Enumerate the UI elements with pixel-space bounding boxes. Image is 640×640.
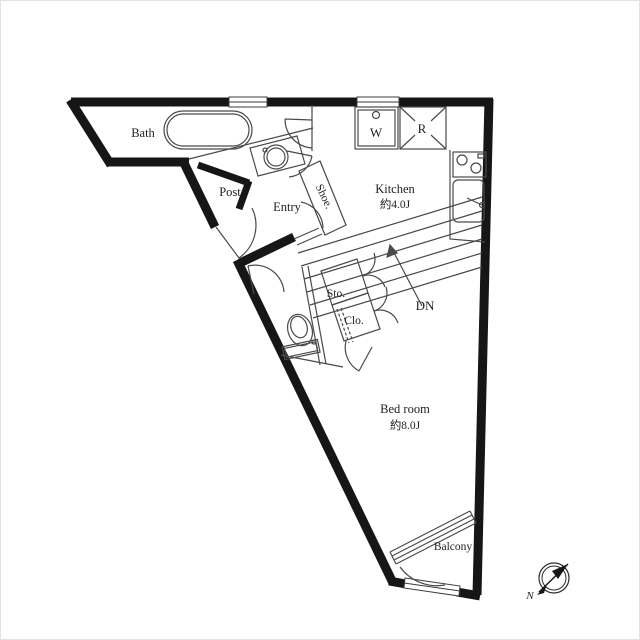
balcony-label: Balcony: [434, 541, 473, 553]
washbasin: [263, 145, 288, 169]
kitchen-label: Kitchen: [375, 182, 415, 196]
floorplan-drawing: Bath Post Entry Shoe. Kitchen 約4.0J W R …: [1, 1, 640, 640]
storage-label: Sto.: [327, 288, 345, 300]
outer-walls: [70, 99, 493, 596]
compass-north-label: N: [525, 590, 534, 602]
stairs: [298, 197, 482, 318]
hall-door-arc: [301, 202, 323, 228]
stove: [453, 152, 486, 177]
floorplan-canvas: Bath Post Entry Shoe. Kitchen 約4.0J W R …: [0, 0, 640, 640]
washer-label: W: [370, 125, 383, 140]
windows: [229, 97, 460, 596]
bath-window: [229, 97, 267, 107]
bedroom-door-arc: [345, 341, 372, 371]
entry-door-arc: [216, 208, 256, 258]
bathtub: [164, 111, 252, 149]
bath-label: Bath: [131, 126, 155, 140]
kitchen-window: [357, 97, 399, 107]
wc-door-arc: [248, 265, 284, 294]
entry-label: Entry: [273, 200, 302, 214]
bath-door-arc: [285, 119, 312, 148]
balcony-window: [404, 578, 460, 596]
post-label: Post: [219, 185, 241, 199]
shoe-label: Shoe.: [313, 182, 335, 211]
fridge-label: R: [418, 121, 427, 136]
balcony-rail: [390, 511, 476, 564]
kitchen-counter: [450, 150, 485, 242]
bedroom-size-label: 約8.0J: [390, 418, 421, 432]
kitchen-size-label: 約4.0J: [380, 197, 411, 211]
closet-label: Clo.: [344, 315, 364, 327]
stairs-arrow: [387, 245, 422, 306]
bedroom-label: Bed room: [380, 402, 430, 416]
entry-step: [294, 228, 322, 245]
closet-doors: [374, 287, 398, 323]
bath-washroom-wall: [189, 128, 313, 159]
compass-icon: [537, 563, 569, 595]
stairs-dn-label: DN: [416, 298, 435, 313]
